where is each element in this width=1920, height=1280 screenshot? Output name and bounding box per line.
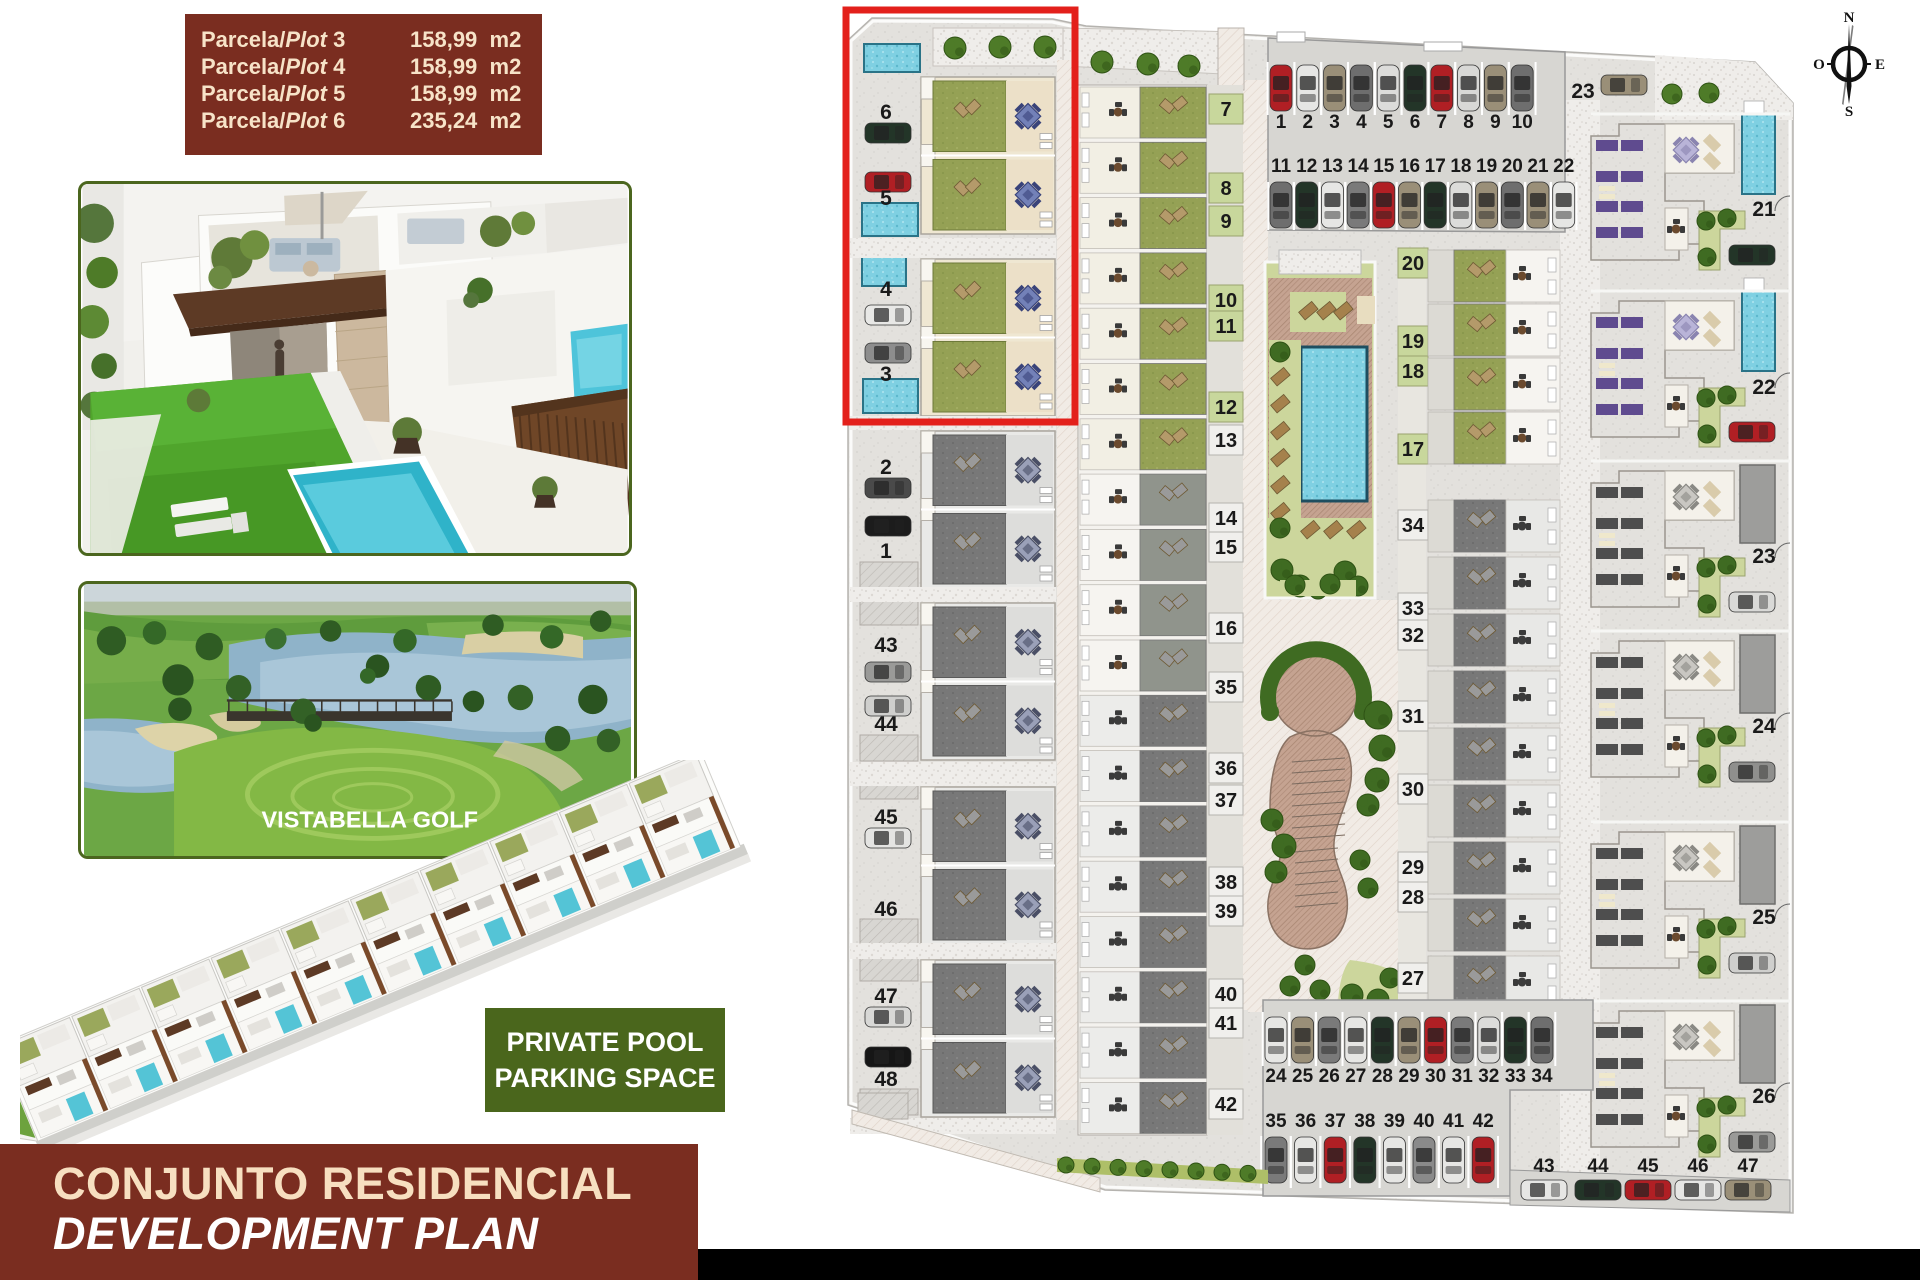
svg-text:23: 23 xyxy=(1752,545,1775,568)
svg-text:16: 16 xyxy=(1399,156,1420,177)
svg-text:45: 45 xyxy=(1637,1156,1659,1177)
svg-text:5: 5 xyxy=(880,187,892,210)
svg-text:27: 27 xyxy=(1345,1066,1366,1087)
svg-text:7: 7 xyxy=(1437,112,1448,133)
svg-text:17: 17 xyxy=(1402,439,1424,461)
svg-text:36: 36 xyxy=(1215,758,1237,780)
svg-text:S: S xyxy=(1845,104,1853,120)
svg-text:4: 4 xyxy=(1356,112,1367,133)
svg-text:32: 32 xyxy=(1478,1066,1499,1087)
svg-text:23: 23 xyxy=(1571,80,1594,103)
svg-text:44: 44 xyxy=(874,713,898,736)
svg-text:30: 30 xyxy=(1402,779,1424,801)
svg-text:22: 22 xyxy=(1553,156,1574,177)
svg-text:21: 21 xyxy=(1752,198,1776,221)
svg-text:38: 38 xyxy=(1354,1111,1375,1132)
svg-text:24: 24 xyxy=(1752,715,1776,738)
svg-text:25: 25 xyxy=(1292,1066,1314,1087)
svg-text:39: 39 xyxy=(1215,901,1237,923)
svg-text:34: 34 xyxy=(1531,1066,1553,1087)
svg-text:7: 7 xyxy=(1220,99,1231,121)
svg-text:10: 10 xyxy=(1512,112,1533,133)
svg-text:14: 14 xyxy=(1348,156,1370,177)
svg-text:10: 10 xyxy=(1215,290,1237,312)
svg-text:21: 21 xyxy=(1527,156,1549,177)
svg-text:41: 41 xyxy=(1443,1111,1465,1132)
svg-text:44: 44 xyxy=(1587,1156,1609,1177)
svg-text:42: 42 xyxy=(1215,1094,1237,1116)
svg-text:34: 34 xyxy=(1402,515,1425,537)
svg-text:37: 37 xyxy=(1215,790,1237,812)
svg-text:11: 11 xyxy=(1215,316,1236,338)
svg-text:13: 13 xyxy=(1215,430,1237,452)
svg-text:18: 18 xyxy=(1450,156,1471,177)
svg-text:8: 8 xyxy=(1463,112,1474,133)
svg-text:O: O xyxy=(1813,57,1825,73)
svg-text:8: 8 xyxy=(1220,178,1231,200)
svg-text:E: E xyxy=(1875,57,1885,73)
svg-text:37: 37 xyxy=(1325,1111,1346,1132)
svg-text:15: 15 xyxy=(1215,537,1237,559)
svg-text:14: 14 xyxy=(1215,508,1238,530)
svg-text:35: 35 xyxy=(1215,677,1237,699)
svg-text:40: 40 xyxy=(1413,1111,1434,1132)
svg-text:26: 26 xyxy=(1319,1066,1340,1087)
svg-text:12: 12 xyxy=(1296,156,1317,177)
svg-text:43: 43 xyxy=(1533,1156,1554,1177)
svg-text:47: 47 xyxy=(1737,1156,1758,1177)
svg-text:9: 9 xyxy=(1490,112,1501,133)
svg-text:2: 2 xyxy=(880,456,892,479)
svg-text:28: 28 xyxy=(1372,1066,1393,1087)
svg-text:6: 6 xyxy=(1410,112,1421,133)
svg-text:29: 29 xyxy=(1402,857,1424,879)
svg-text:19: 19 xyxy=(1402,331,1424,353)
svg-text:27: 27 xyxy=(1402,968,1424,990)
svg-text:1: 1 xyxy=(880,540,892,563)
svg-text:N: N xyxy=(1844,10,1855,26)
svg-text:17: 17 xyxy=(1425,156,1446,177)
svg-text:22: 22 xyxy=(1752,376,1775,399)
svg-text:33: 33 xyxy=(1505,1066,1526,1087)
svg-text:31: 31 xyxy=(1452,1066,1474,1087)
svg-text:9: 9 xyxy=(1220,211,1231,233)
svg-text:6: 6 xyxy=(880,101,892,124)
svg-text:46: 46 xyxy=(1687,1156,1708,1177)
svg-text:28: 28 xyxy=(1402,887,1424,909)
svg-text:38: 38 xyxy=(1215,872,1237,894)
svg-text:40: 40 xyxy=(1215,984,1237,1006)
svg-text:24: 24 xyxy=(1265,1066,1287,1087)
svg-text:20: 20 xyxy=(1502,156,1523,177)
svg-text:48: 48 xyxy=(874,1068,898,1091)
svg-text:36: 36 xyxy=(1295,1111,1316,1132)
svg-text:3: 3 xyxy=(880,363,892,386)
svg-text:1: 1 xyxy=(1276,112,1287,133)
svg-text:15: 15 xyxy=(1373,156,1395,177)
svg-text:26: 26 xyxy=(1752,1085,1775,1108)
svg-text:11: 11 xyxy=(1271,156,1292,177)
svg-text:16: 16 xyxy=(1215,618,1237,640)
svg-text:32: 32 xyxy=(1402,625,1424,647)
svg-text:4: 4 xyxy=(880,278,892,301)
svg-text:2: 2 xyxy=(1303,112,1314,133)
svg-text:39: 39 xyxy=(1384,1111,1405,1132)
svg-text:45: 45 xyxy=(874,806,898,829)
svg-text:29: 29 xyxy=(1398,1066,1419,1087)
svg-text:25: 25 xyxy=(1752,906,1776,929)
svg-text:42: 42 xyxy=(1473,1111,1494,1132)
svg-text:46: 46 xyxy=(874,898,897,921)
svg-text:3: 3 xyxy=(1329,112,1340,133)
svg-text:31: 31 xyxy=(1402,706,1424,728)
svg-text:33: 33 xyxy=(1402,598,1424,620)
svg-text:20: 20 xyxy=(1402,253,1424,275)
svg-text:41: 41 xyxy=(1215,1013,1237,1035)
svg-text:30: 30 xyxy=(1425,1066,1446,1087)
svg-text:5: 5 xyxy=(1383,112,1394,133)
svg-text:47: 47 xyxy=(874,985,897,1008)
svg-text:12: 12 xyxy=(1215,397,1237,419)
svg-text:35: 35 xyxy=(1265,1111,1287,1132)
svg-text:43: 43 xyxy=(874,634,897,657)
svg-text:19: 19 xyxy=(1476,156,1497,177)
svg-text:18: 18 xyxy=(1402,361,1424,383)
svg-text:13: 13 xyxy=(1322,156,1343,177)
